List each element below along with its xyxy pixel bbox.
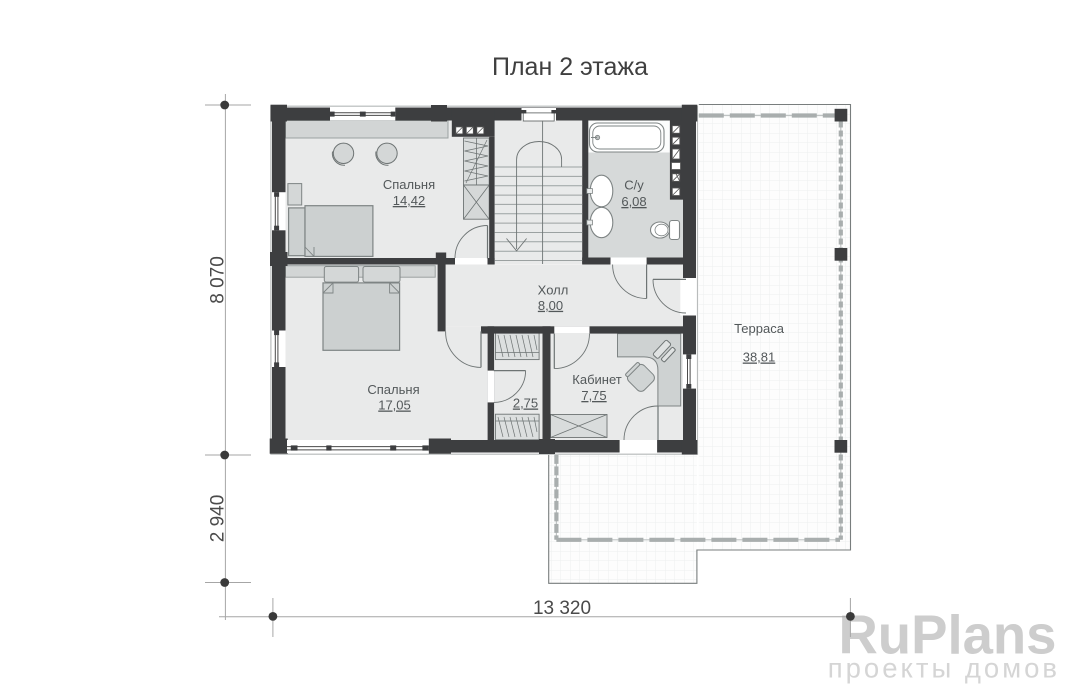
svg-text:Терраса: Терраса [734,321,785,336]
svg-text:проекты домов: проекты домов [828,653,1060,684]
svg-text:2,75: 2,75 [513,396,538,411]
svg-text:Спальня: Спальня [367,382,419,397]
svg-text:6,08: 6,08 [621,194,646,209]
svg-text:17,05: 17,05 [378,398,411,413]
svg-text:Спальня: Спальня [383,177,435,192]
svg-text:8,00: 8,00 [538,298,563,313]
svg-text:2 940: 2 940 [208,495,229,543]
svg-text:Холл: Холл [538,283,569,298]
svg-text:Кабинет: Кабинет [572,372,621,387]
svg-text:С/у: С/у [624,178,644,193]
svg-text:14,42: 14,42 [393,193,426,208]
svg-text:38,81: 38,81 [743,350,776,365]
svg-text:13 320: 13 320 [533,598,591,619]
svg-text:План 2 этажа: План 2 этажа [492,53,648,81]
svg-text:7,75: 7,75 [581,388,606,403]
svg-text:8 070: 8 070 [208,256,229,304]
